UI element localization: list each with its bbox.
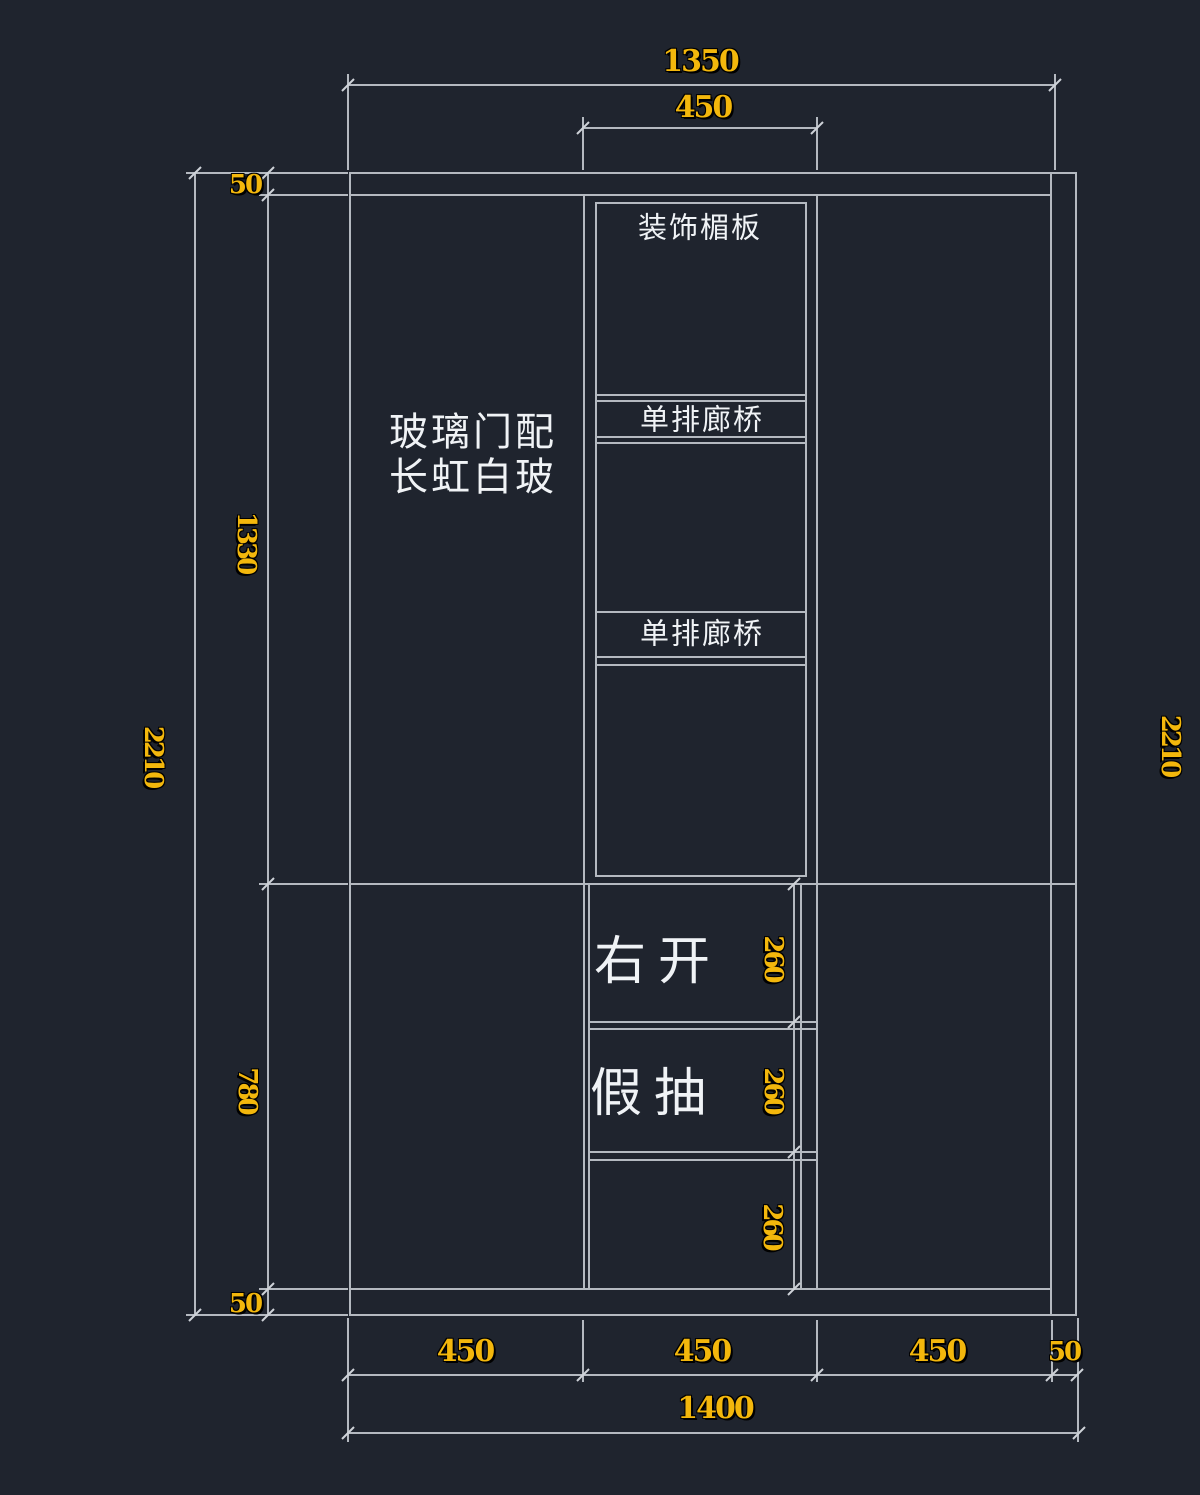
dim-line-bottom-chain (348, 1374, 1079, 1376)
extension-line (347, 1318, 349, 1442)
dim-line-middle-chain (793, 883, 795, 1289)
dim-text-left-top-gap: 50 (229, 172, 261, 198)
extension-line (259, 194, 348, 196)
cabinet-outer-left (349, 172, 351, 1316)
dim-text-bottom-overall: 1400 (677, 1394, 753, 1424)
label-gallery-bridge-1: 单排廊桥 (640, 406, 764, 435)
dim-line-bottom-overall (348, 1432, 1079, 1434)
shelf-line (595, 656, 806, 658)
dim-line-left-overall (194, 172, 196, 1316)
dim-text-bottom-2: 450 (674, 1337, 731, 1367)
dim-text-left-upper: 1330 (233, 512, 259, 572)
label-glass-door-line2: 长虹白玻 (389, 459, 557, 498)
center-column-right-outer (816, 194, 818, 1290)
extension-line (259, 883, 348, 885)
center-column-left-outer (583, 194, 585, 1290)
dim-text-left-overall: 2210 (140, 726, 166, 786)
door-divider (588, 1159, 816, 1161)
cabinet-outer-right (1075, 172, 1077, 1316)
dim-text-middle-3: 260 (759, 1203, 785, 1248)
shelf-line (595, 611, 806, 613)
door-divider (588, 1021, 816, 1023)
shelf-line (595, 394, 806, 396)
dim-text-top-center: 450 (675, 93, 732, 123)
dim-line-top-overall (348, 84, 1055, 86)
dim-text-left-bottom-gap: 50 (229, 1291, 261, 1317)
door-divider (588, 1028, 816, 1030)
center-box-top (595, 202, 806, 204)
label-gallery-bridge-2: 单排廊桥 (640, 620, 764, 649)
dim-text-bottom-3: 450 (909, 1337, 966, 1367)
extension-line (347, 74, 349, 170)
cabinet-inner-top (350, 194, 1051, 196)
extension-line (259, 1288, 348, 1290)
dim-text-bottom-1: 450 (437, 1337, 494, 1367)
label-decorative-panel: 装饰楣板 (638, 214, 762, 243)
center-column-right-inner (805, 202, 807, 877)
label-right-open: 右开 (594, 936, 722, 988)
dim-line-top-center (583, 127, 817, 129)
door-section-right (800, 883, 802, 1290)
cad-drawing-canvas[interactable]: 1350 450 50 1330 2210 780 50 2210 260 26… (0, 0, 1200, 1495)
cabinet-mid-shelf (350, 883, 1077, 885)
center-box-bottom (595, 875, 806, 877)
cabinet-inner-right-panel (1050, 172, 1052, 1316)
label-glass-door-line1: 玻璃门配 (389, 414, 557, 453)
dim-text-top-overall: 1350 (662, 47, 738, 77)
dim-line-left-chain (267, 172, 269, 1316)
label-fake-drawer: 假抽 (590, 1068, 718, 1120)
cabinet-outer-top (350, 172, 1077, 174)
cabinet-inner-bottom (350, 1288, 1051, 1290)
shelf-line (595, 442, 806, 444)
cabinet-outer-bottom (350, 1314, 1077, 1316)
extension-line (1054, 74, 1056, 170)
door-divider (588, 1151, 816, 1153)
dim-text-left-lower: 780 (234, 1067, 260, 1112)
dim-text-bottom-4: 50 (1048, 1339, 1080, 1365)
center-column-left-inner (595, 202, 597, 877)
dim-text-middle-2: 260 (760, 1067, 786, 1112)
dim-text-right-overall: 2210 (1157, 715, 1183, 775)
dim-text-middle-1: 260 (760, 935, 786, 980)
shelf-line (595, 664, 806, 666)
